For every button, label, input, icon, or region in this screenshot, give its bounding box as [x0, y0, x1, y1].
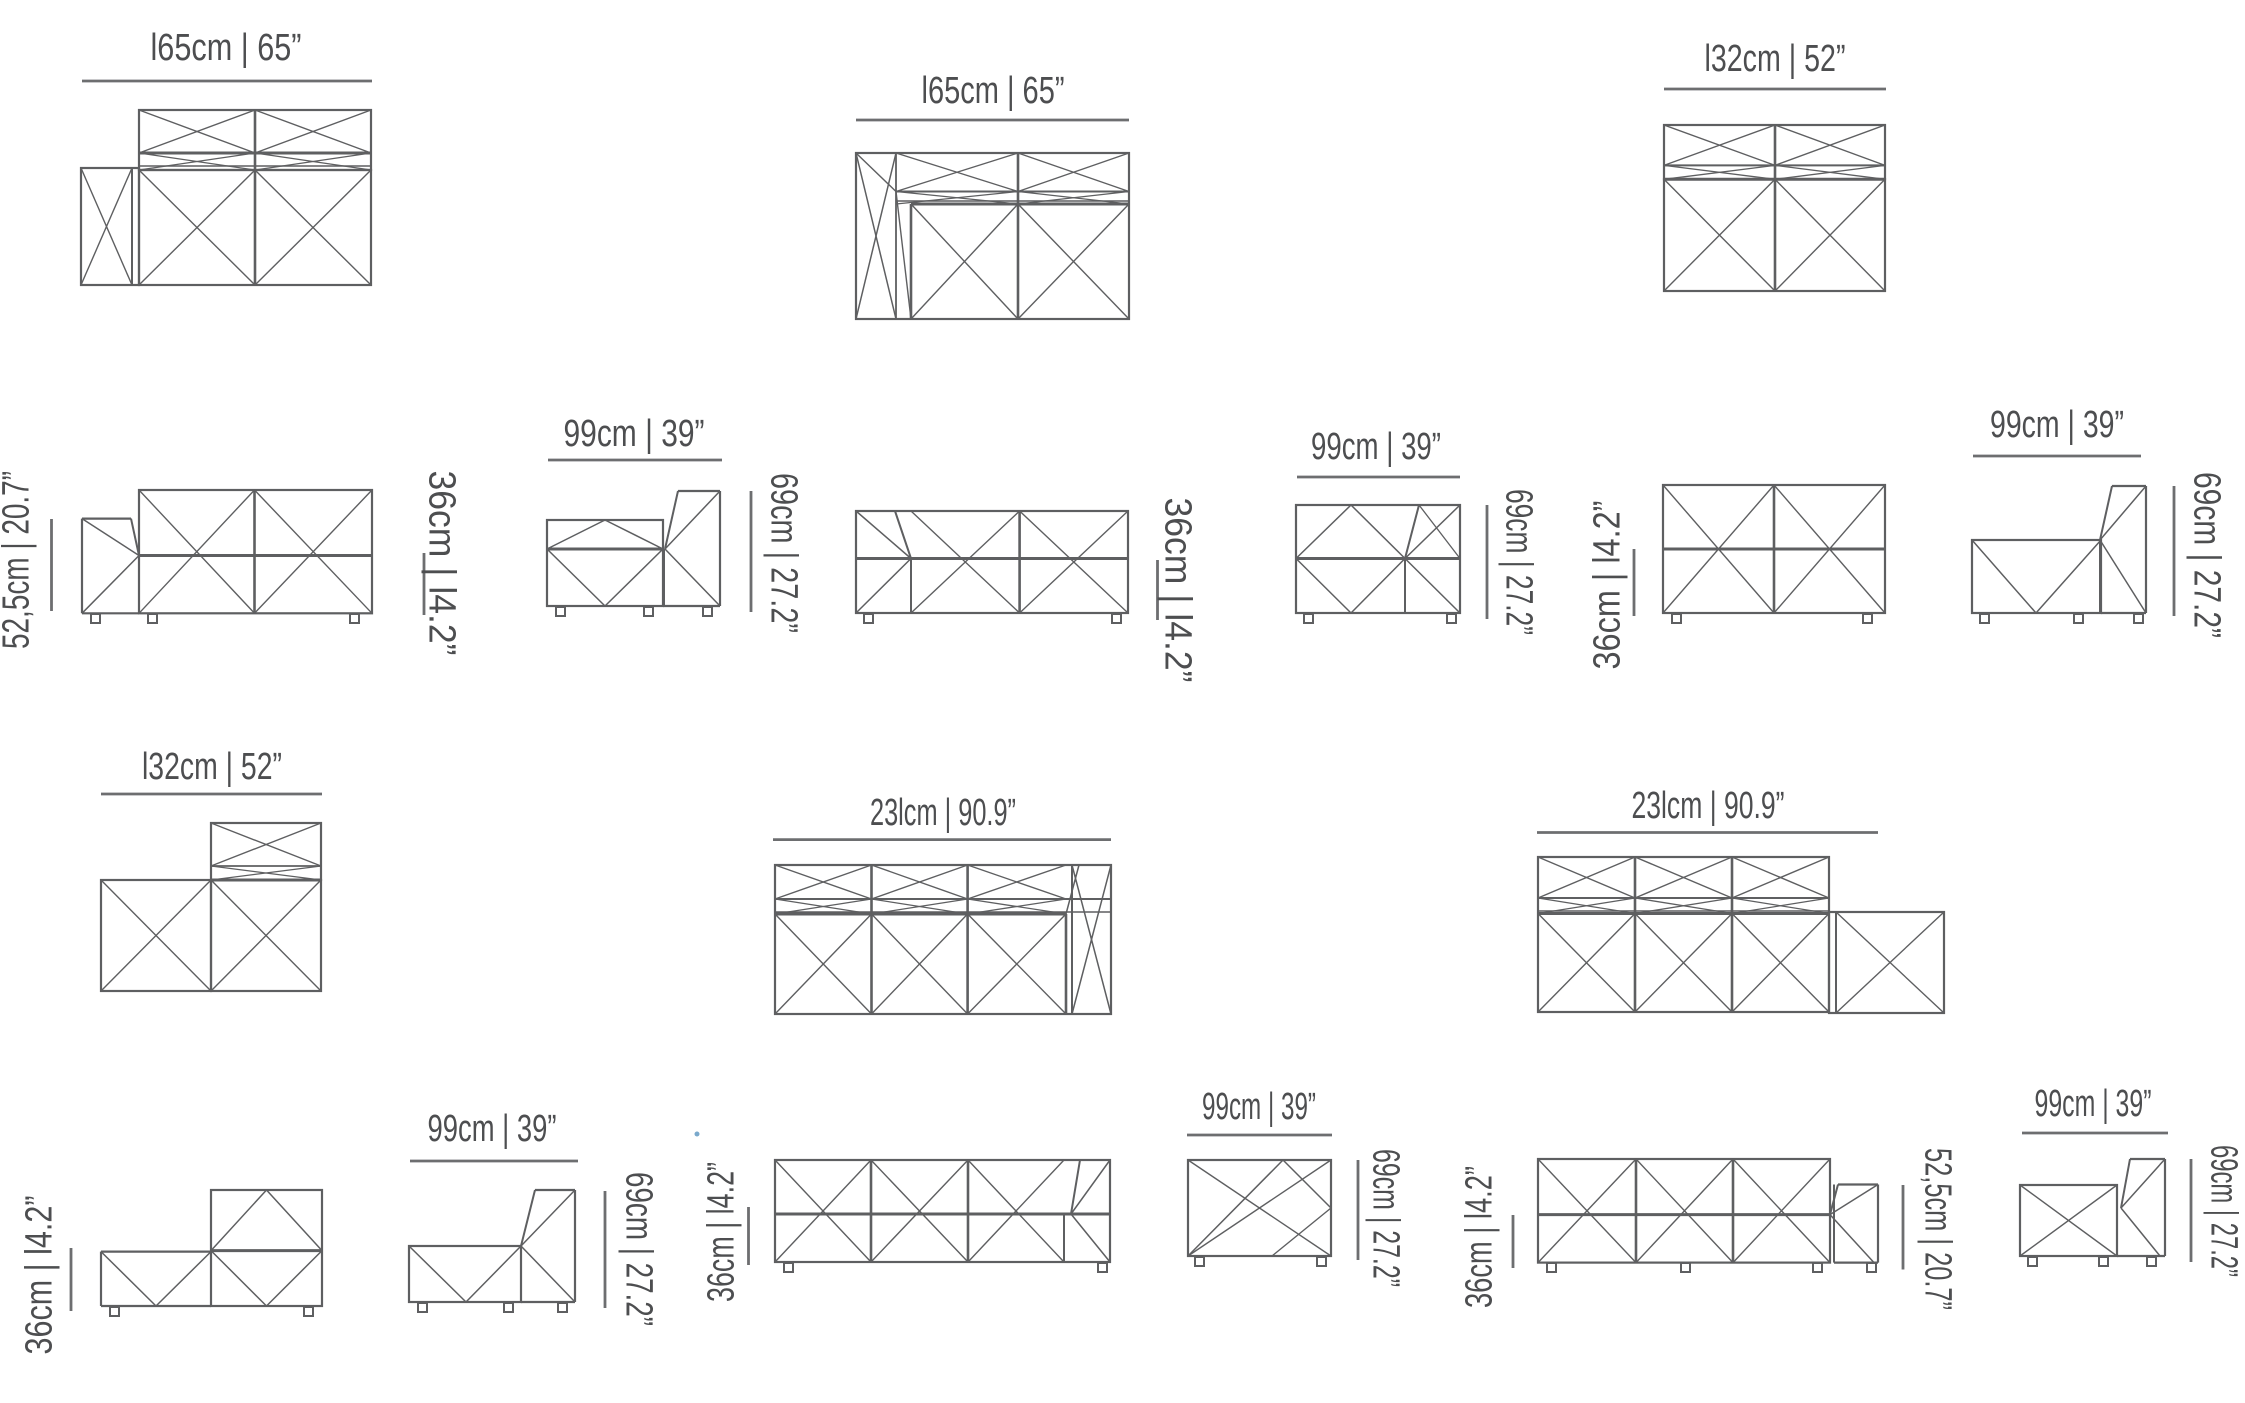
svg-text:99cm | 39”: 99cm | 39” [1990, 404, 2124, 446]
svg-text:36cm | l4.2”: 36cm | l4.2” [701, 1162, 743, 1302]
svg-text:l32cm | 52”: l32cm | 52” [1705, 38, 1846, 80]
svg-text:36cm | l4.2”: 36cm | l4.2” [1587, 501, 1629, 670]
svg-text:69cm | 27.2”: 69cm | 27.2” [617, 1172, 659, 1326]
svg-text:69cm | 27.2”: 69cm | 27.2” [2202, 1145, 2244, 1277]
svg-text:99cm | 39”: 99cm | 39” [428, 1108, 557, 1150]
svg-text:52,5cm | 20.7”: 52,5cm | 20.7” [0, 471, 38, 649]
svg-text:52,5cm | 20.7”: 52,5cm | 20.7” [1916, 1148, 1958, 1310]
svg-text:69cm | 27.2”: 69cm | 27.2” [1364, 1149, 1406, 1287]
svg-text:99cm | 39”: 99cm | 39” [2035, 1083, 2152, 1125]
svg-text:l65cm | 65”: l65cm | 65” [151, 27, 302, 69]
svg-text:36cm | l4.2”: 36cm | l4.2” [420, 471, 462, 656]
svg-text:69cm | 27.2”: 69cm | 27.2” [2185, 472, 2227, 638]
svg-text:23lcm | 90.9”: 23lcm | 90.9” [870, 792, 1016, 834]
svg-text:36cm | l4.2”: 36cm | l4.2” [19, 1196, 61, 1355]
svg-text:69cm | 27.2”: 69cm | 27.2” [762, 473, 804, 633]
svg-text:l65cm | 65”: l65cm | 65” [922, 70, 1065, 112]
svg-text:36cm | l4.2”: 36cm | l4.2” [1459, 1166, 1501, 1308]
svg-text:99cm | 39”: 99cm | 39” [1202, 1086, 1316, 1128]
svg-text:99cm | 39”: 99cm | 39” [1311, 426, 1441, 468]
svg-text:l32cm | 52”: l32cm | 52” [142, 746, 282, 788]
svg-text:99cm | 39”: 99cm | 39” [564, 413, 705, 455]
svg-text:23lcm | 90.9”: 23lcm | 90.9” [1632, 785, 1785, 827]
svg-text:69cm | 27.2”: 69cm | 27.2” [1497, 489, 1539, 635]
svg-text:36cm | l4.2”: 36cm | l4.2” [1156, 498, 1198, 683]
